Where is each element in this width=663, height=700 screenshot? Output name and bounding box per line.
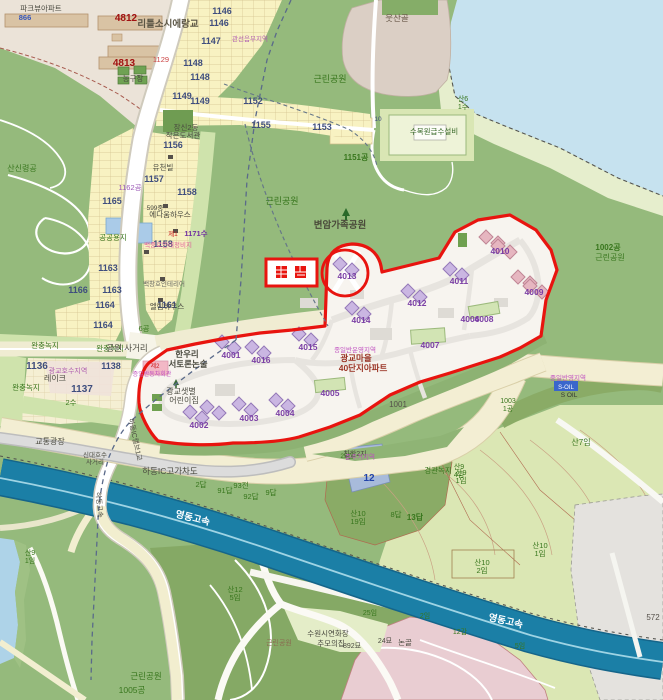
svg-text:10: 10: [374, 116, 382, 123]
svg-text:공공용지: 공공용지: [99, 233, 127, 242]
svg-text:4813: 4813: [113, 58, 136, 69]
svg-text:근린공원: 근린공원: [265, 196, 298, 206]
svg-text:근린공원: 근린공원: [595, 252, 624, 262]
svg-text:4011: 4011: [450, 276, 469, 286]
svg-text:91답: 91답: [217, 485, 232, 495]
svg-text:광교호수지역: 광교호수지역: [49, 366, 88, 375]
svg-text:6공: 6공: [138, 324, 149, 333]
svg-text:4006: 4006: [461, 314, 480, 324]
svg-text:수목원급수설비: 수목원급수설비: [410, 127, 458, 136]
svg-text:9답: 9답: [265, 487, 276, 497]
svg-text:1153: 1153: [312, 122, 332, 132]
svg-text:2임: 2임: [420, 612, 430, 620]
svg-text:572: 572: [646, 613, 660, 622]
svg-text:1임: 1임: [25, 557, 35, 565]
svg-text:경관녹지: 경관녹지: [424, 465, 452, 475]
svg-text:사거리: 사거리: [86, 457, 104, 466]
svg-text:종일반운영지역: 종일반운영지역: [334, 345, 376, 354]
svg-text:5임: 5임: [515, 642, 525, 650]
svg-text:24묘: 24묘: [378, 637, 393, 645]
svg-text:엘림하우스: 엘림하우스: [150, 301, 185, 311]
svg-text:1163: 1163: [102, 285, 122, 295]
svg-text:준주거지역: 준주거지역: [345, 452, 375, 461]
svg-text:1148: 1148: [183, 58, 203, 68]
svg-text:1149: 1149: [172, 91, 192, 101]
svg-text:농구장: 농구장: [123, 73, 144, 83]
svg-text:S OIL: S OIL: [561, 392, 578, 399]
svg-text:산9: 산9: [25, 548, 35, 557]
svg-text:1165: 1165: [102, 196, 122, 206]
svg-text:광교샛별: 광교샛별: [166, 386, 195, 396]
svg-text:4012: 4012: [408, 298, 427, 308]
svg-text:추모의집: 추모의집: [317, 638, 345, 648]
svg-text:1003: 1003: [500, 398, 516, 405]
svg-text:1164: 1164: [95, 300, 115, 310]
svg-text:근린공원: 근린공원: [313, 74, 346, 84]
svg-text:1164: 1164: [93, 320, 113, 330]
svg-text:12갑: 12갑: [453, 628, 468, 636]
svg-text:2답: 2답: [195, 479, 206, 489]
svg-text:유천빌: 유천빌: [153, 162, 174, 172]
svg-text:증일반동차회관: 증일반동차회관: [133, 370, 172, 378]
svg-text:4009: 4009: [525, 287, 544, 297]
svg-text:1162공: 1162공: [118, 183, 141, 192]
svg-text:1147: 1147: [201, 36, 221, 46]
svg-text:산7임: 산7임: [571, 437, 590, 447]
svg-text:1148: 1148: [190, 72, 210, 82]
svg-text:4812: 4812: [115, 13, 138, 24]
svg-text:1002공: 1002공: [595, 243, 621, 252]
svg-text:서토론논술: 서토론논술: [168, 359, 207, 369]
svg-text:하동IC고가차도: 하동IC고가차도: [142, 466, 198, 476]
svg-text:5임: 5임: [229, 593, 240, 602]
svg-text:4014: 4014: [352, 315, 371, 325]
svg-text:1임: 1임: [534, 549, 545, 558]
svg-text:근린공원: 근린공원: [266, 638, 292, 647]
svg-text:리틀소시에랑교: 리틀소시에랑교: [137, 18, 198, 30]
svg-text:산신령공: 산신령공: [7, 163, 36, 173]
svg-text:제2: 제2: [151, 362, 161, 370]
svg-text:중일반영지역: 중일반영지역: [550, 373, 586, 382]
svg-text:1임: 1임: [455, 476, 466, 485]
svg-text:수원시연화장: 수원시연화장: [307, 628, 348, 638]
svg-text:완충녹지: 완충녹지: [31, 341, 59, 350]
svg-text:1171수: 1171수: [184, 229, 207, 238]
svg-text:4016: 4016: [252, 355, 271, 365]
svg-text:12: 12: [363, 473, 375, 484]
svg-text:4001: 4001: [222, 350, 241, 360]
svg-text:92답: 92답: [243, 491, 258, 501]
svg-text:2수: 2수: [65, 398, 76, 407]
svg-text:1수: 1수: [458, 103, 469, 111]
svg-text:1136: 1136: [26, 361, 48, 372]
svg-text:공원 사거리: 공원 사거리: [106, 343, 147, 353]
svg-text:4003: 4003: [240, 413, 259, 423]
svg-text:신대호수: 신대호수: [83, 450, 107, 459]
svg-text:파크뷰아파트: 파크뷰아파트: [20, 3, 61, 13]
svg-text:백중로인테정비지: 백중로인테정비지: [144, 240, 192, 249]
svg-text:1129: 1129: [153, 55, 169, 64]
svg-text:웃산골: 웃산골: [385, 13, 409, 23]
svg-text:1138: 1138: [101, 361, 121, 371]
svg-text:1146: 1146: [209, 18, 229, 28]
svg-text:866: 866: [19, 13, 32, 22]
svg-text:근린공원: 근린공원: [130, 671, 161, 681]
svg-text:1005공: 1005공: [119, 685, 146, 695]
svg-text:1152: 1152: [243, 96, 263, 106]
svg-text:1137: 1137: [71, 384, 93, 395]
svg-text:4007: 4007: [421, 340, 440, 350]
svg-text:S-OIL: S-OIL: [558, 385, 574, 391]
svg-text:백창호인테리어: 백창호인테리어: [143, 279, 185, 288]
svg-text:작은도서관: 작은도서관: [166, 130, 201, 140]
svg-text:599중: 599중: [147, 204, 164, 212]
svg-text:관선음부지역: 관선음부지역: [232, 34, 268, 43]
svg-text:1163: 1163: [98, 263, 118, 273]
svg-text:93전: 93전: [233, 480, 248, 490]
svg-text:4010: 4010: [491, 246, 510, 256]
svg-text:1001: 1001: [389, 400, 407, 409]
svg-text:19임: 19임: [350, 517, 365, 526]
svg-text:교통광장: 교통광장: [35, 436, 65, 446]
svg-text:40단지아파트: 40단지아파트: [339, 363, 388, 373]
svg-text:1146: 1146: [212, 6, 232, 16]
svg-text:4015: 4015: [299, 342, 318, 352]
svg-text:변암가족공원: 변암가족공원: [314, 219, 366, 231]
svg-text:1149: 1149: [190, 96, 210, 106]
svg-text:13답: 13답: [407, 512, 424, 522]
svg-text:1공: 1공: [503, 405, 514, 413]
svg-text:논골: 논골: [398, 638, 412, 647]
svg-text:산6: 산6: [458, 94, 468, 103]
svg-text:1157: 1157: [144, 174, 164, 184]
svg-text:4002: 4002: [190, 420, 209, 430]
svg-text:한우리: 한우리: [175, 349, 198, 359]
svg-text:1155: 1155: [251, 120, 271, 130]
svg-text:1156: 1156: [163, 140, 183, 150]
svg-text:어린이집: 어린이집: [169, 395, 198, 405]
svg-text:25임: 25임: [363, 609, 377, 617]
svg-text:4005: 4005: [321, 388, 340, 398]
svg-text:4004: 4004: [276, 408, 295, 418]
svg-text:1151공: 1151공: [344, 153, 369, 162]
svg-text:4013: 4013: [338, 271, 357, 281]
svg-text:2임: 2임: [476, 566, 487, 575]
svg-text:완충녹지: 완충녹지: [12, 383, 40, 392]
svg-text:8답: 8답: [390, 509, 401, 519]
svg-text:1166: 1166: [68, 285, 88, 295]
svg-text:광교마을: 광교마을: [340, 353, 371, 363]
svg-text:892묘: 892묘: [343, 642, 362, 650]
svg-text:제1: 제1: [168, 230, 178, 238]
svg-text:1158: 1158: [177, 187, 197, 197]
